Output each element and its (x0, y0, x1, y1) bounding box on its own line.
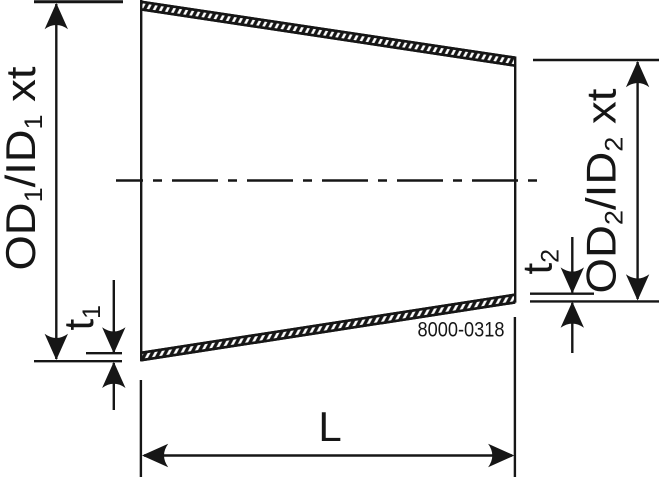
svg-text:8000-0318: 8000-0318 (418, 319, 505, 342)
svg-text:OD1/ID1 xt: OD1/ID1 xt (0, 66, 48, 270)
svg-text:L: L (318, 403, 341, 450)
svg-text:t1: t1 (55, 305, 106, 331)
svg-text:t2: t2 (514, 249, 565, 275)
svg-text:OD2/ID2 xt: OD2/ID2 xt (577, 88, 628, 293)
